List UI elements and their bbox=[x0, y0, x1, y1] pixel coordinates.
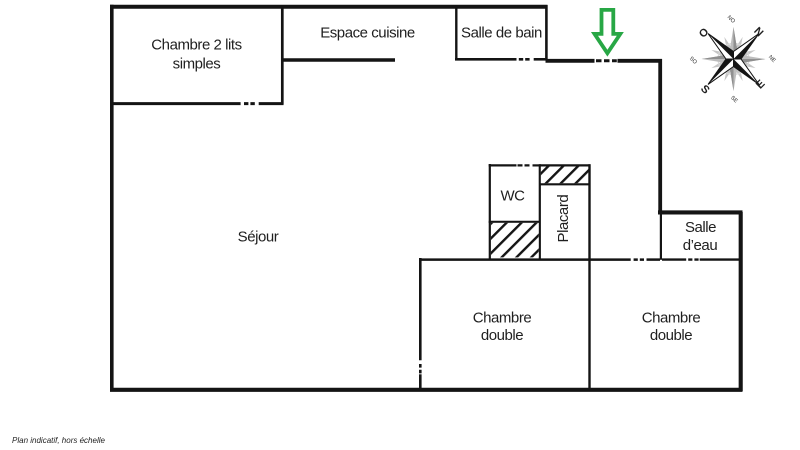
svg-text:d’eau: d’eau bbox=[683, 237, 718, 254]
svg-text:Salle: Salle bbox=[685, 219, 716, 236]
svg-text:simples: simples bbox=[173, 56, 221, 73]
svg-text:WC: WC bbox=[500, 188, 525, 205]
svg-text:Séjour: Séjour bbox=[238, 229, 279, 246]
svg-text:Placard: Placard bbox=[555, 195, 572, 243]
svg-text:double: double bbox=[650, 327, 692, 344]
svg-text:Chambre 2 lits: Chambre 2 lits bbox=[151, 37, 241, 54]
svg-text:Chambre: Chambre bbox=[642, 309, 701, 326]
svg-text:Chambre: Chambre bbox=[473, 309, 532, 326]
svg-text:double: double bbox=[481, 327, 523, 344]
svg-text:Plan indicatif, hors échelle: Plan indicatif, hors échelle bbox=[12, 436, 105, 445]
svg-text:Espace cuisine: Espace cuisine bbox=[320, 25, 415, 42]
svg-text:Salle de bain: Salle de bain bbox=[461, 25, 542, 42]
